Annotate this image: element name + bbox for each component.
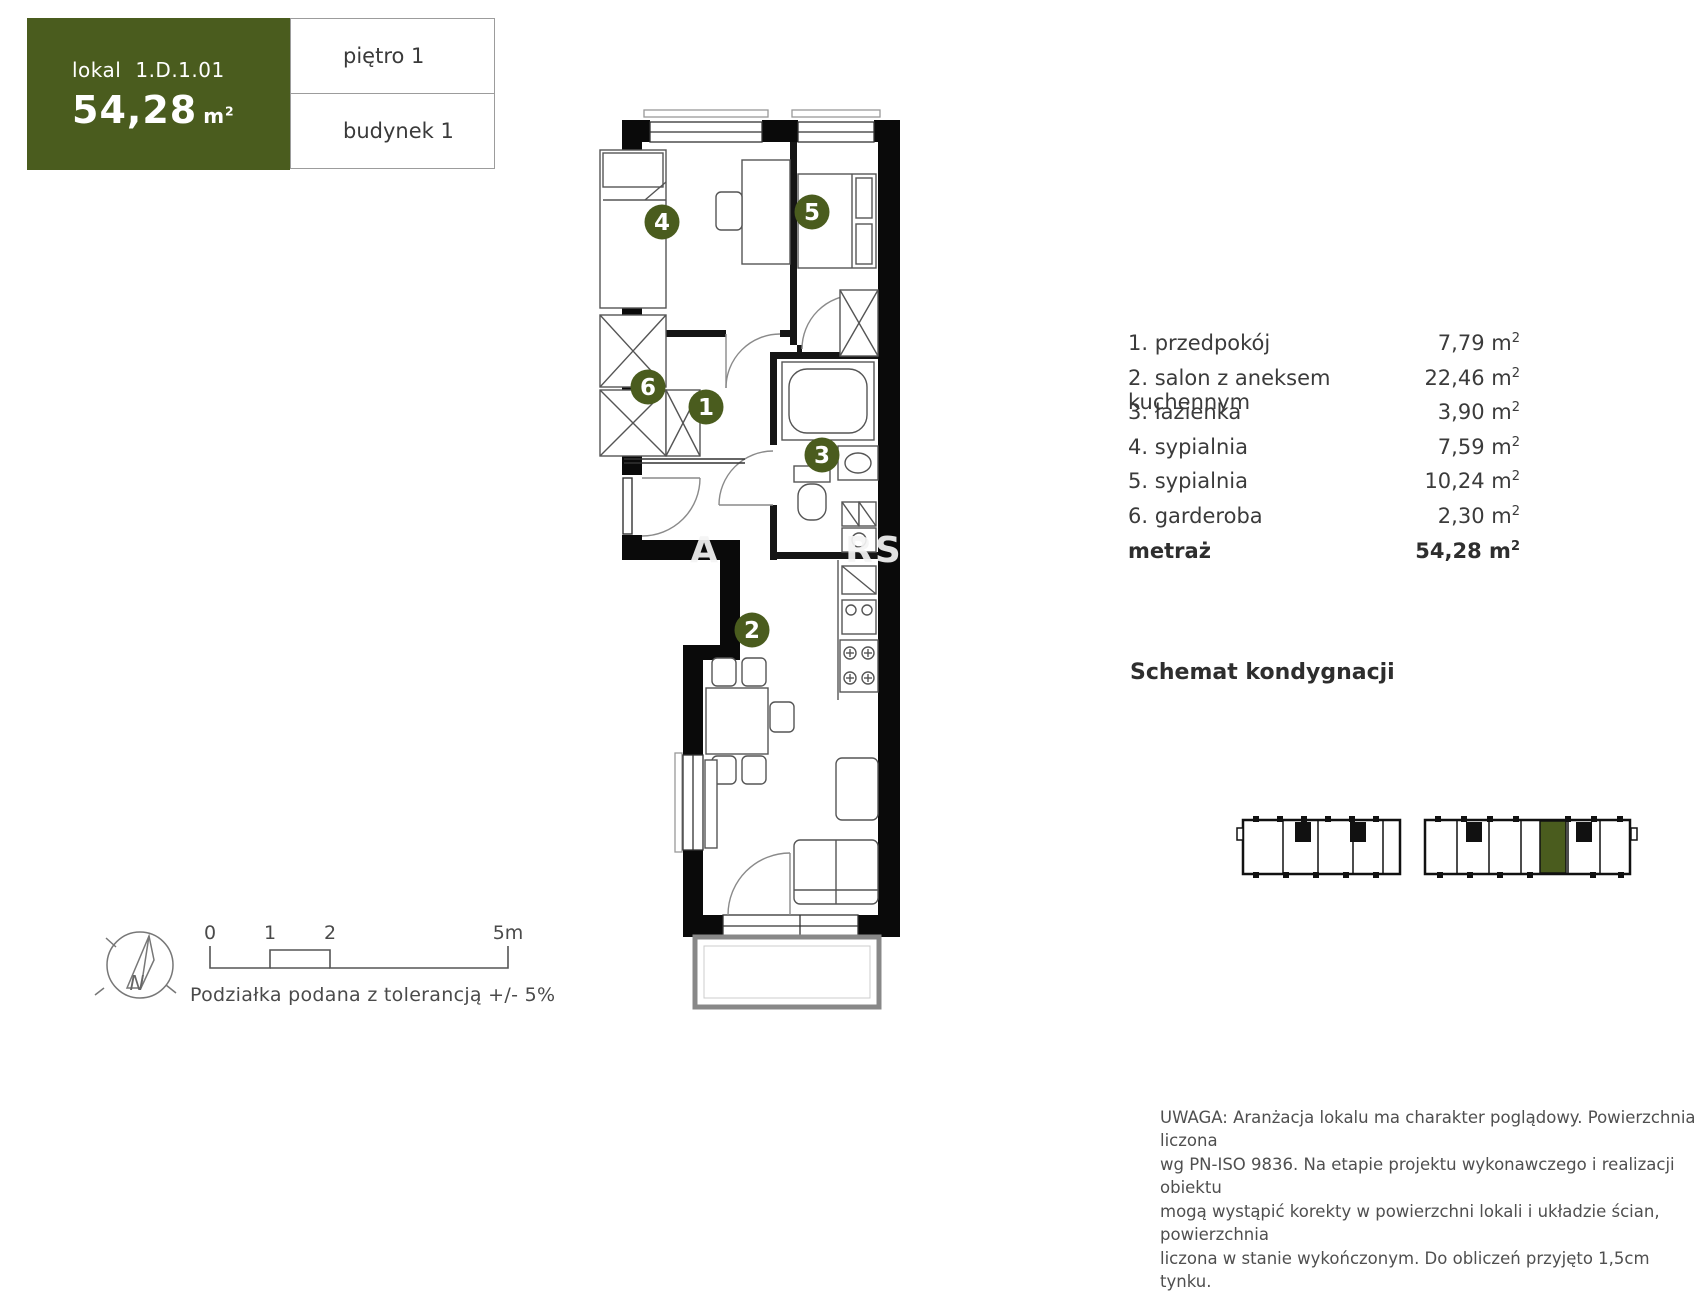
north-label: N: [130, 971, 145, 995]
armchair: [836, 758, 878, 820]
tv-bench: [705, 760, 717, 848]
badge-room-4: 4: [645, 205, 680, 240]
schematic-building-2: [1425, 816, 1637, 878]
kitchen: [838, 560, 878, 700]
svg-text:3: 3: [814, 443, 830, 469]
watermark-part1: A: [690, 530, 720, 571]
badge-room-1: 1: [689, 390, 724, 425]
dining-table: [706, 658, 794, 784]
stove: [840, 640, 878, 692]
svg-text:1: 1: [698, 395, 714, 421]
compass: N: [95, 932, 176, 998]
desk: [716, 160, 790, 264]
watermark-part2: RS: [845, 530, 903, 571]
sofa: [794, 840, 878, 904]
schematic-building-1: [1237, 816, 1400, 878]
sink: [838, 446, 878, 480]
wardrobe: [600, 315, 745, 463]
scale-bar: [210, 946, 508, 968]
svg-text:5: 5: [804, 200, 820, 226]
bathtub: [782, 362, 874, 440]
balcony: [695, 937, 879, 1007]
floorplan-canvas: A RS 1 2 3 4 5: [0, 0, 1707, 1200]
badge-room-2: 2: [735, 613, 770, 648]
svg-text:2: 2: [744, 618, 760, 644]
highlighted-unit: [1540, 821, 1566, 873]
badge-room-3: 3: [805, 438, 840, 473]
floorplan: A RS 1 2 3 4 5: [600, 110, 903, 1007]
toilet: [794, 466, 830, 520]
wardrobe-2: [840, 290, 878, 356]
badge-room-5: 5: [795, 195, 830, 230]
badge-room-6: 6: [631, 370, 666, 405]
floor-schematic: [1237, 816, 1637, 878]
svg-text:6: 6: [640, 375, 656, 401]
svg-text:4: 4: [654, 210, 670, 236]
